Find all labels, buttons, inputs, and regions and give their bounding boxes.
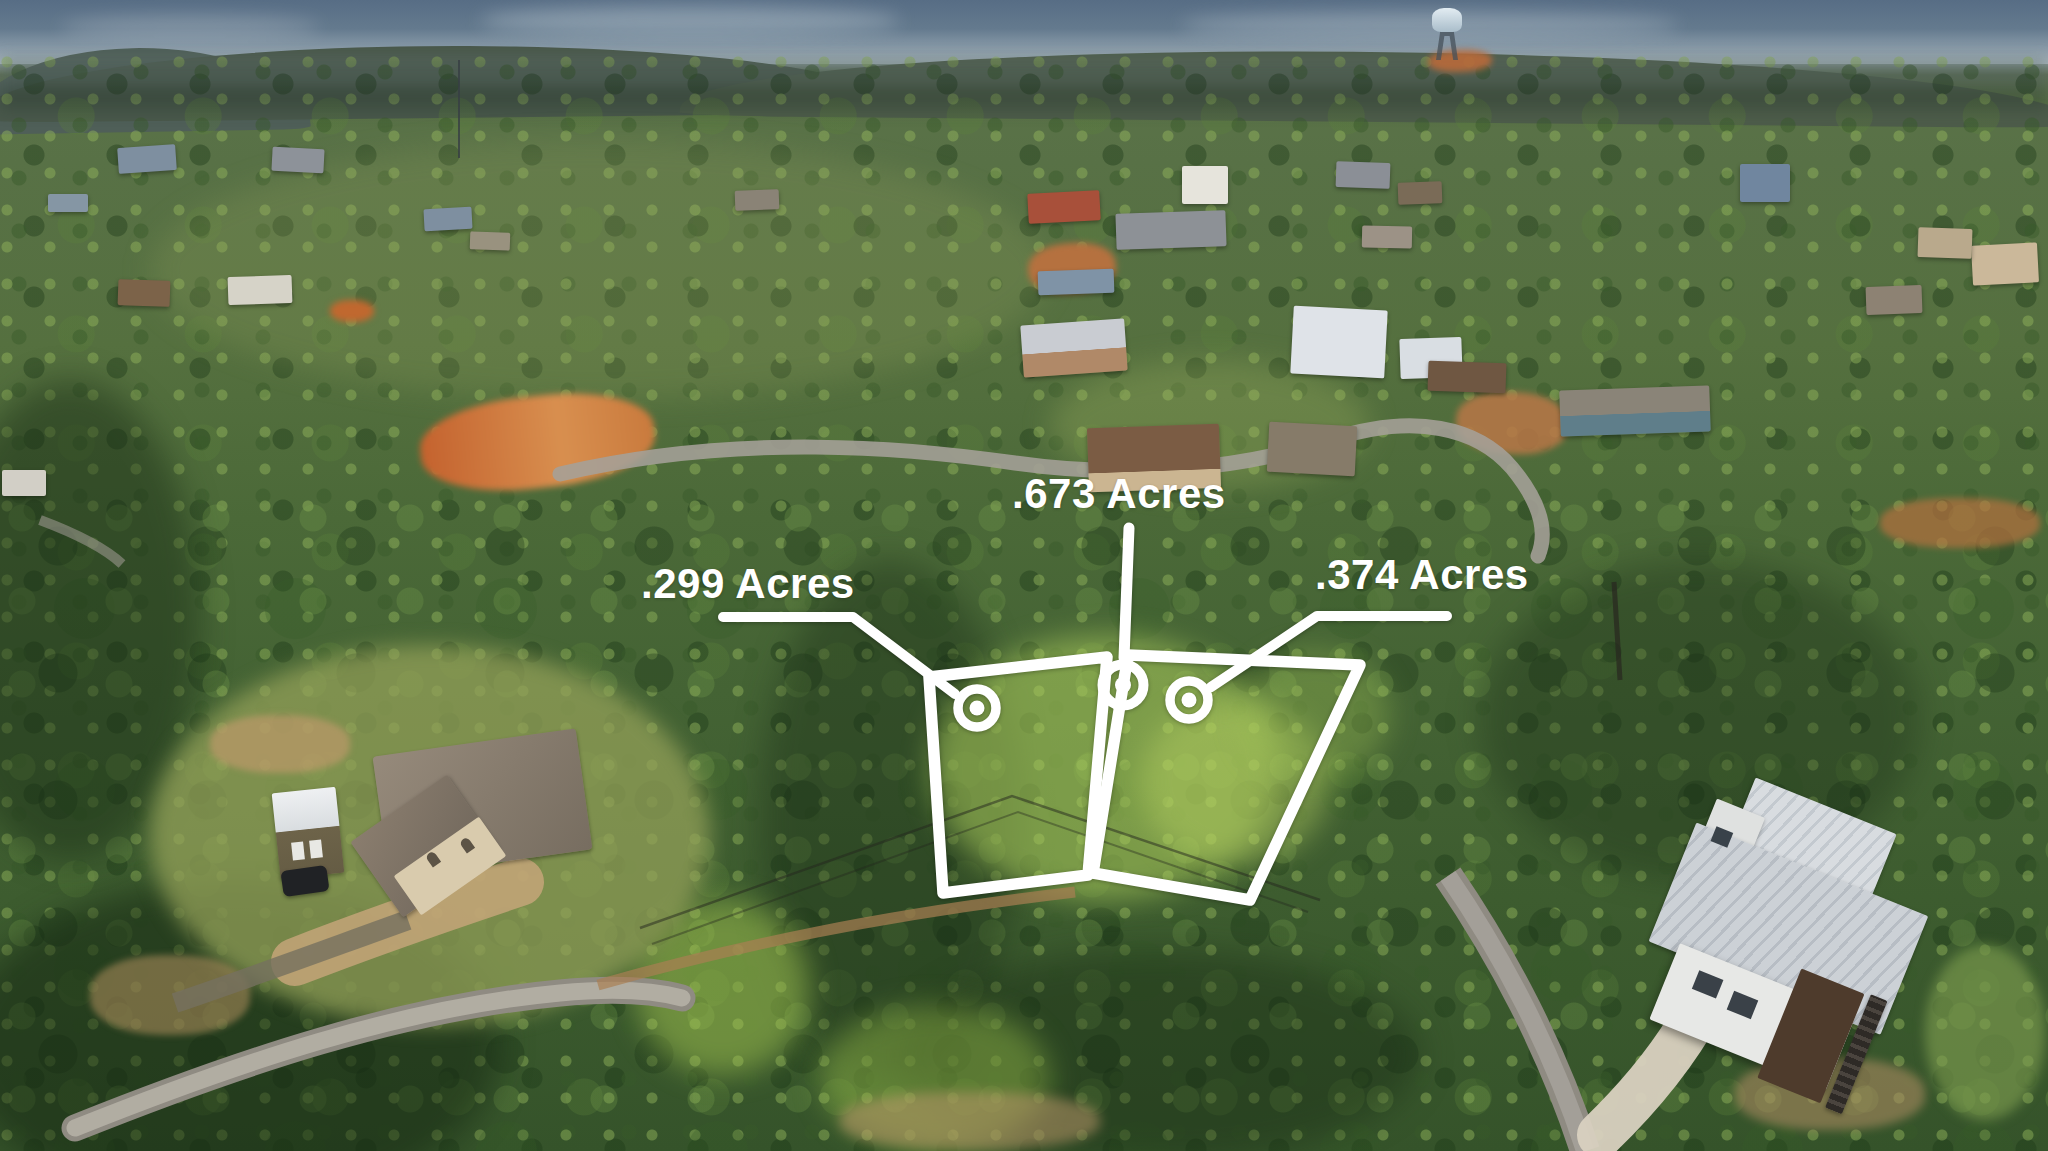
lot-marker-left: [958, 689, 996, 727]
lot-marker-right: [1170, 681, 1208, 719]
leader-line-right: [1211, 616, 1447, 687]
acreage-label-left: .299 Acres: [641, 560, 855, 608]
leader-line-center: [1124, 528, 1129, 658]
parcel-overlay: [0, 0, 2048, 1151]
acreage-label-combined: .673 Acres: [1012, 470, 1226, 518]
aerial-photo: .299 Acres .673 Acres .374 Acres: [0, 0, 2048, 1151]
lot-boundary-right: [1093, 655, 1360, 900]
leader-line-left: [723, 617, 955, 694]
acreage-label-right: .374 Acres: [1315, 551, 1529, 599]
